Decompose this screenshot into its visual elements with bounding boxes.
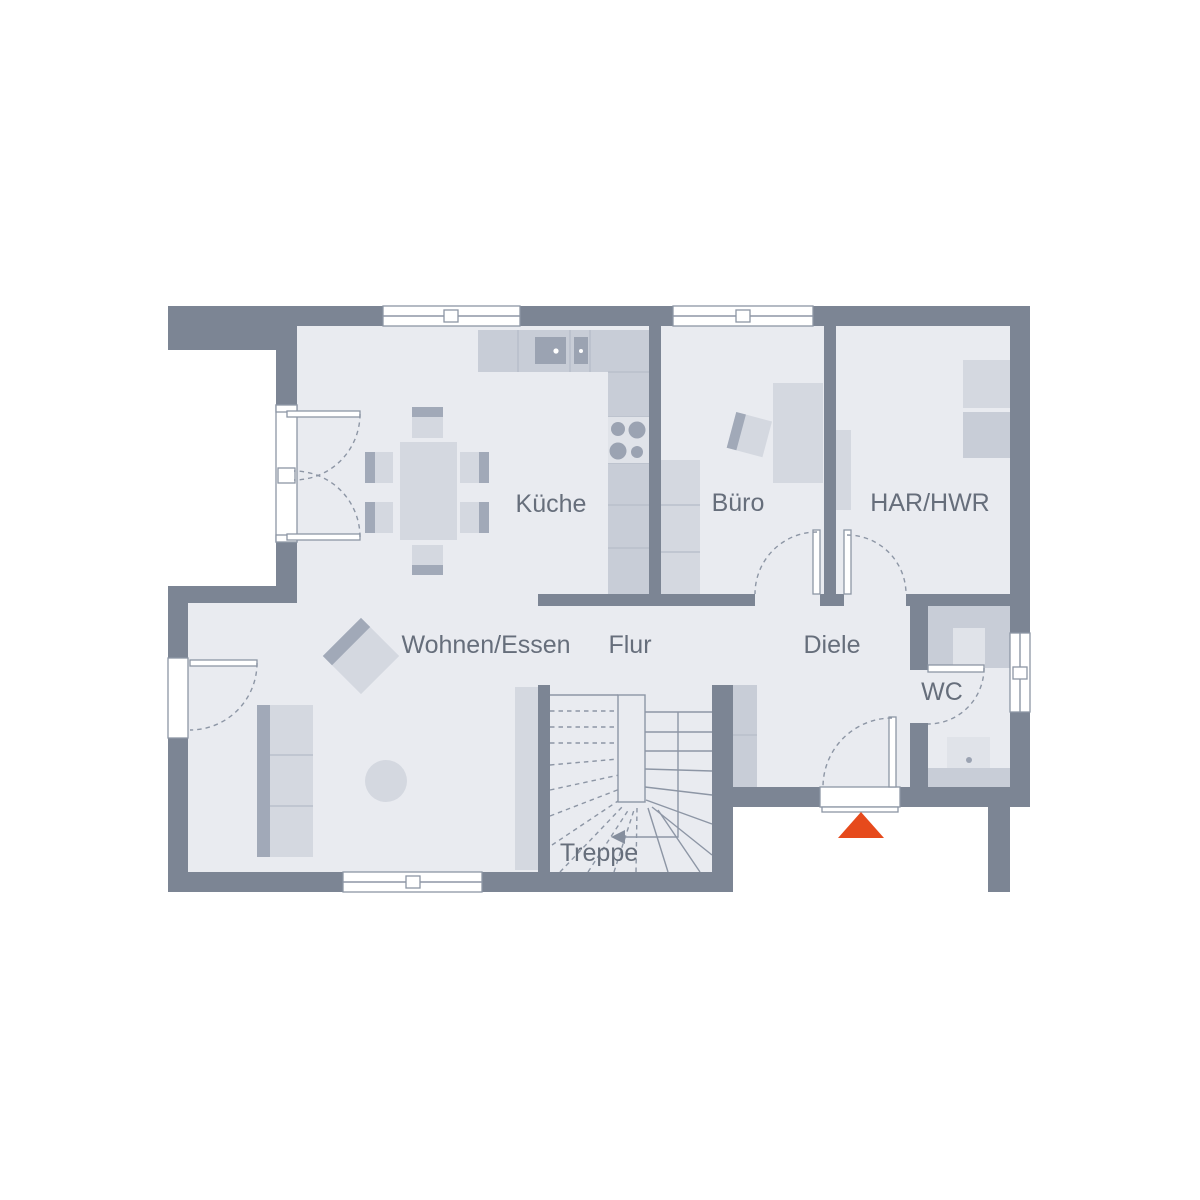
dining-chair bbox=[365, 452, 393, 483]
room-label-har-hwr: HAR/HWR bbox=[870, 489, 989, 517]
window-office bbox=[673, 306, 813, 326]
floor-plan-page: Küche Büro HAR/HWR Wohnen/Essen Flur Die… bbox=[0, 0, 1200, 1200]
wall-office-utility bbox=[824, 326, 836, 596]
dining-chair bbox=[365, 502, 393, 533]
wall-exterior-top bbox=[168, 306, 1030, 326]
door-leaf bbox=[928, 665, 984, 672]
dining-chair bbox=[460, 502, 489, 533]
door-leaf bbox=[287, 534, 360, 540]
entrance-marker-triangle bbox=[838, 812, 884, 838]
room-label-kueche: Küche bbox=[516, 490, 587, 518]
door-leaf bbox=[190, 660, 257, 666]
wall-porch-left bbox=[712, 807, 733, 892]
wall-corridor-b bbox=[820, 594, 844, 606]
sofa bbox=[257, 705, 313, 857]
living-shelf bbox=[515, 687, 538, 870]
wall-wc-upper bbox=[910, 606, 928, 670]
dryer bbox=[963, 412, 1010, 458]
cooktop-burner bbox=[629, 422, 646, 439]
wall-kitchen-office bbox=[649, 326, 661, 596]
entrance-sill bbox=[822, 807, 898, 812]
door-leaf bbox=[844, 530, 851, 594]
coffee-table bbox=[365, 760, 407, 802]
window-dining bbox=[383, 306, 520, 326]
room-label-diele: Diele bbox=[804, 631, 861, 659]
floor-plan-drawing: Küche Büro HAR/HWR Wohnen/Essen Flur Die… bbox=[0, 0, 1200, 1200]
wall-stair-left bbox=[538, 685, 550, 872]
door-handle-mark bbox=[278, 468, 295, 483]
desk bbox=[773, 383, 823, 483]
hall-wardrobe bbox=[733, 685, 757, 787]
door-leaf bbox=[813, 530, 820, 594]
utility-shelf bbox=[836, 430, 851, 510]
room-label-treppe: Treppe bbox=[560, 839, 638, 867]
appliance-dot bbox=[579, 349, 583, 353]
stair-void bbox=[618, 695, 645, 802]
wall-corner-block bbox=[168, 326, 278, 350]
door-leaf bbox=[287, 411, 360, 417]
room-label-buero: Büro bbox=[712, 489, 765, 517]
kitchen-sink bbox=[535, 337, 566, 364]
wall-porch-right bbox=[988, 807, 1010, 892]
room-label-flur: Flur bbox=[608, 631, 651, 659]
door-leaf bbox=[889, 717, 896, 787]
dining-table bbox=[400, 442, 457, 540]
wall-exterior-right bbox=[1010, 326, 1030, 807]
wc-sink bbox=[953, 628, 985, 668]
dining-chair bbox=[412, 407, 443, 438]
office-cabinet bbox=[661, 460, 700, 594]
kitchen-counter-column bbox=[608, 330, 649, 597]
shower-drain bbox=[966, 757, 972, 763]
room-label-wc: WC bbox=[921, 678, 963, 706]
window-wc bbox=[1010, 633, 1030, 712]
washing-machine bbox=[963, 360, 1010, 408]
dining-chair bbox=[412, 545, 443, 575]
dining-chair bbox=[460, 452, 489, 483]
cooktop-burner bbox=[610, 443, 627, 460]
room-label-wohnen-essen: Wohnen/Essen bbox=[401, 631, 570, 659]
window-living bbox=[343, 872, 482, 892]
wall-wc-lower bbox=[910, 723, 928, 787]
wc-lower-unit bbox=[928, 768, 1010, 787]
cooktop-burner bbox=[631, 446, 643, 458]
wall-recess-bottom bbox=[168, 586, 297, 603]
cooktop-burner bbox=[611, 422, 625, 436]
sink-drain-dot bbox=[553, 348, 558, 353]
wc-vanity bbox=[928, 606, 1010, 668]
wall-stair-right bbox=[712, 685, 733, 787]
wall-corridor-c bbox=[906, 594, 1010, 606]
wall-exterior-left bbox=[168, 603, 188, 892]
wall-corridor-a bbox=[538, 594, 755, 606]
